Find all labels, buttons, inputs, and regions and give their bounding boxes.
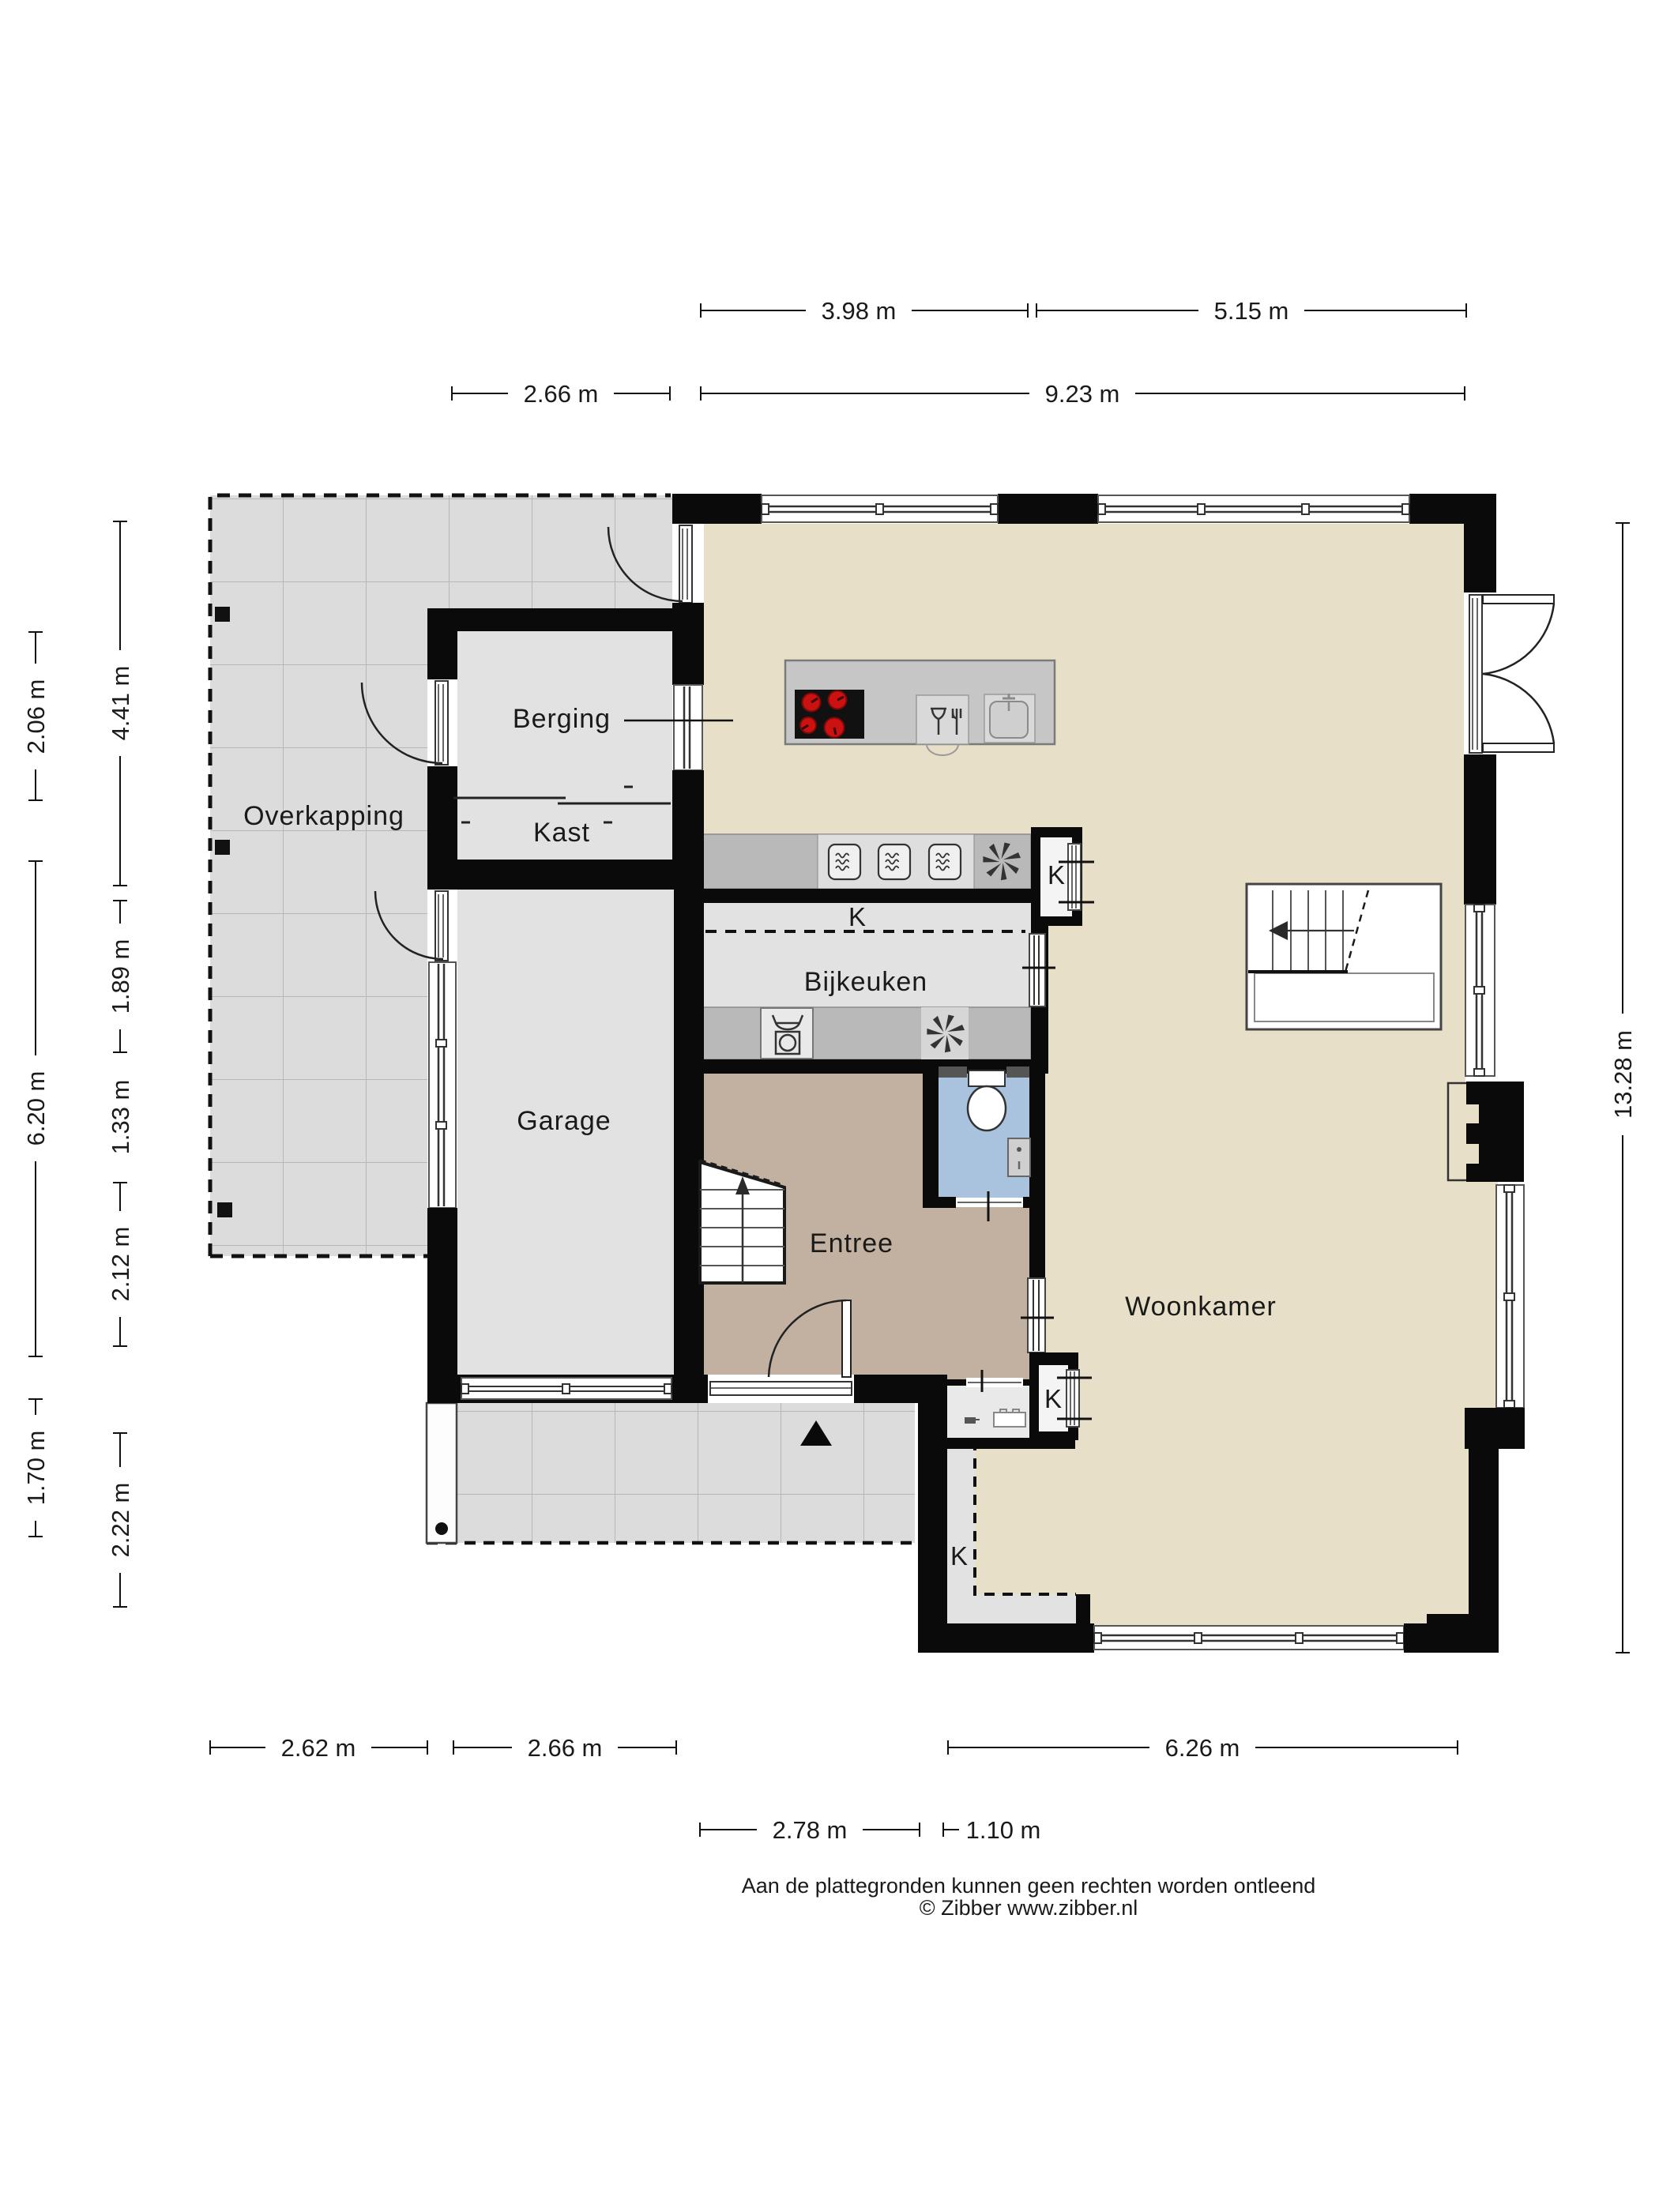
svg-text:2.12 m: 2.12 m [107,1227,134,1302]
svg-text:1.70 m: 1.70 m [22,1431,50,1506]
svg-text:© Zibber www.zibber.nl: © Zibber www.zibber.nl [920,1896,1138,1920]
svg-text:13.28 m: 13.28 m [1609,1030,1637,1119]
svg-text:2.22 m: 2.22 m [107,1483,134,1558]
svg-text:Garage: Garage [517,1106,611,1136]
svg-text:Overkapping: Overkapping [243,801,404,831]
svg-text:Aan de plattegronden kunnen ge: Aan de plattegronden kunnen geen rechten… [742,1874,1316,1898]
svg-text:1.10 m: 1.10 m [966,1816,1041,1844]
svg-text:6.20 m: 6.20 m [22,1071,50,1146]
svg-text:2.78 m: 2.78 m [773,1816,848,1844]
svg-text:Bijkeuken: Bijkeuken [804,967,927,997]
svg-text:K: K [1044,1384,1062,1413]
svg-text:1.89 m: 1.89 m [107,939,134,1014]
svg-text:2.66 m: 2.66 m [524,380,599,408]
svg-text:Berging: Berging [513,704,611,734]
svg-text:2.66 m: 2.66 m [528,1734,603,1762]
svg-text:1.33 m: 1.33 m [107,1080,134,1155]
svg-text:Woonkamer: Woonkamer [1125,1292,1277,1322]
svg-text:Kast: Kast [533,818,590,848]
svg-text:3.98 m: 3.98 m [822,297,897,325]
svg-text:4.41 m: 4.41 m [107,666,134,741]
svg-text:K: K [848,902,866,931]
svg-text:9.23 m: 9.23 m [1045,380,1120,408]
svg-text:2.62 m: 2.62 m [281,1734,356,1762]
svg-text:5.15 m: 5.15 m [1214,297,1289,325]
svg-text:2.06 m: 2.06 m [22,679,50,754]
svg-text:K: K [1048,860,1065,890]
svg-text:K: K [950,1541,968,1571]
svg-text:Entree: Entree [810,1228,893,1258]
svg-text:6.26 m: 6.26 m [1165,1734,1240,1762]
